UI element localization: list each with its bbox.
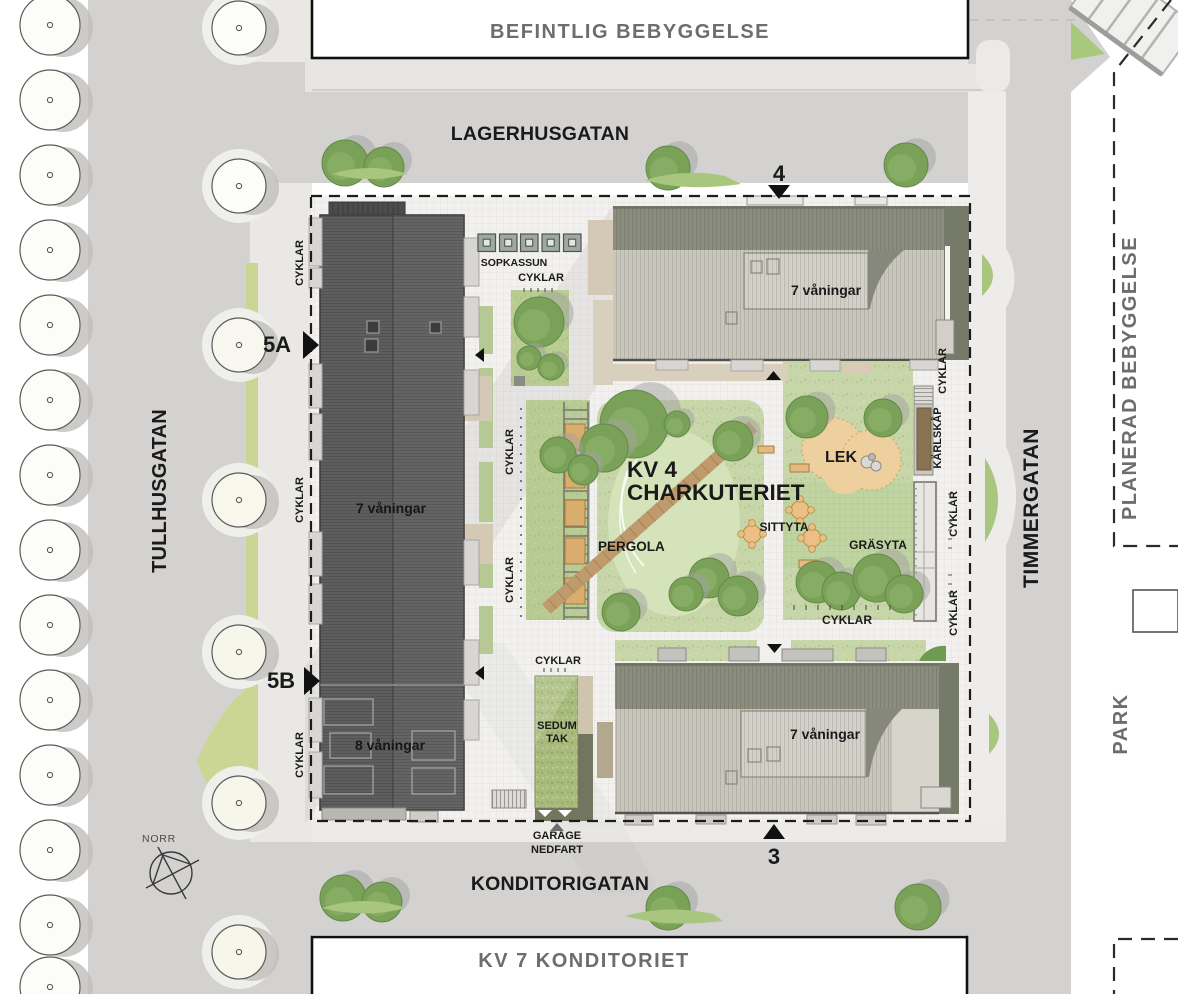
- svg-text:LAGERHUSGATAN: LAGERHUSGATAN: [451, 123, 629, 145]
- svg-text:CYKLAR: CYKLAR: [535, 655, 581, 667]
- svg-text:KONDITORIGATAN: KONDITORIGATAN: [471, 873, 649, 895]
- svg-text:CYKLAR: CYKLAR: [294, 240, 306, 286]
- svg-text:TIMMERGATAN: TIMMERGATAN: [1020, 428, 1043, 588]
- svg-text:CYKLAR: CYKLAR: [948, 590, 960, 636]
- svg-text:NORR: NORR: [142, 833, 176, 845]
- svg-text:CYKLAR: CYKLAR: [504, 557, 516, 603]
- svg-text:CYKLAR: CYKLAR: [294, 477, 306, 523]
- svg-text:8 våningar: 8 våningar: [355, 737, 426, 753]
- svg-text:PLANERAD BEBYGGELSE: PLANERAD BEBYGGELSE: [1119, 236, 1141, 520]
- svg-text:TULLHUSGATAN: TULLHUSGATAN: [149, 409, 171, 573]
- svg-text:SEDUM: SEDUM: [537, 720, 577, 732]
- svg-text:CYKLAR: CYKLAR: [504, 429, 516, 475]
- svg-text:GARAGE: GARAGE: [533, 830, 581, 842]
- svg-text:CHARKUTERIET: CHARKUTERIET: [627, 480, 805, 505]
- svg-text:7 våningar: 7 våningar: [790, 726, 861, 742]
- svg-text:7 våningar: 7 våningar: [356, 500, 427, 516]
- svg-text:NEDFART: NEDFART: [531, 844, 583, 856]
- svg-text:PARK: PARK: [1110, 693, 1132, 754]
- svg-text:CYKLAR: CYKLAR: [937, 348, 949, 394]
- svg-text:4: 4: [773, 161, 786, 186]
- svg-text:3: 3: [768, 844, 780, 869]
- svg-text:CYKLAR: CYKLAR: [294, 732, 306, 778]
- svg-text:KÄRLSKÅP: KÄRLSKÅP: [931, 407, 944, 468]
- svg-text:KV 4: KV 4: [627, 457, 678, 482]
- svg-text:GRÄSYTA: GRÄSYTA: [849, 537, 907, 552]
- svg-text:BEFINTLIG BEBYGGELSE: BEFINTLIG BEBYGGELSE: [490, 21, 770, 43]
- svg-text:7 våningar: 7 våningar: [791, 282, 862, 298]
- svg-text:5A: 5A: [263, 332, 291, 357]
- svg-text:LEK: LEK: [825, 449, 857, 466]
- svg-text:KV 7 KONDITORIET: KV 7 KONDITORIET: [478, 950, 689, 972]
- svg-text:CYKLAR: CYKLAR: [822, 613, 872, 627]
- svg-text:TAK: TAK: [546, 733, 568, 745]
- svg-text:PERGOLA: PERGOLA: [598, 539, 665, 554]
- svg-text:SOPKASSUN: SOPKASSUN: [481, 257, 548, 269]
- svg-text:SITTYTA: SITTYTA: [759, 520, 808, 534]
- svg-text:CYKLAR: CYKLAR: [518, 272, 564, 284]
- svg-text:5B: 5B: [267, 668, 295, 693]
